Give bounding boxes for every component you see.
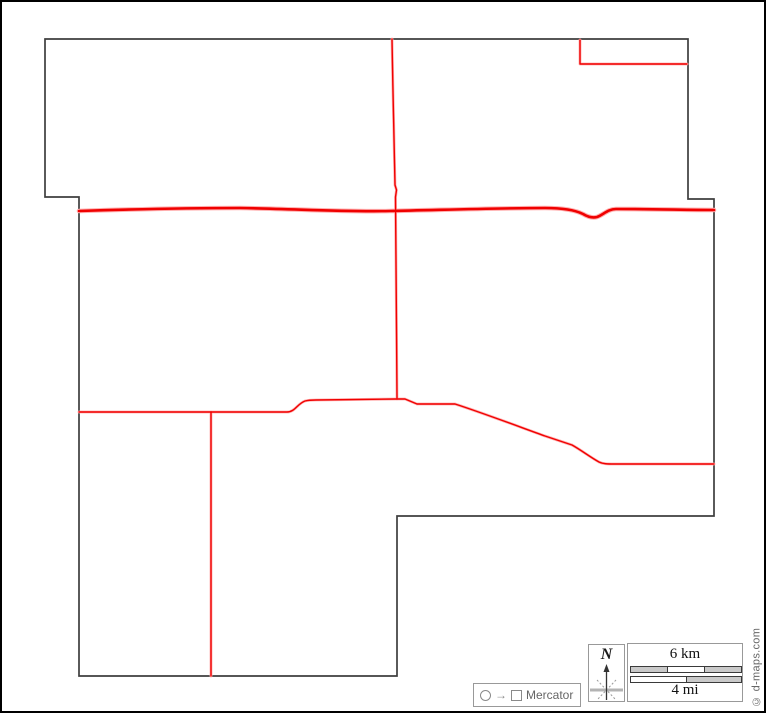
projection-badge: → Mercator <box>473 683 581 707</box>
county-outline <box>45 39 714 676</box>
globe-circle-icon <box>480 690 491 701</box>
scale-mi-label: 4 mi <box>628 682 742 699</box>
west-east-road-halo <box>79 399 397 412</box>
scale-km-segment <box>631 667 667 672</box>
scale-bar: 6 km 4 mi <box>627 643 743 702</box>
junction-southeast-road <box>397 399 714 464</box>
county-map <box>0 0 766 713</box>
map-canvas: N 6 km 4 mi → Mercator © d-maps.com <box>0 0 766 713</box>
flat-map-square-icon <box>511 690 522 701</box>
scale-km-segment <box>704 667 741 672</box>
northeast-boundary-halo <box>580 40 687 64</box>
projection-label: Mercator <box>526 688 573 702</box>
north-indicator: N <box>588 644 625 702</box>
scale-km-segment <box>667 667 704 672</box>
projection-arrow-icon: → <box>495 689 507 701</box>
compass-arrow-icon <box>589 663 624 701</box>
north-label: N <box>589 647 624 663</box>
scale-km-bar <box>630 666 742 673</box>
scale-km-label: 6 km <box>628 646 742 663</box>
northeast-boundary-road <box>580 40 687 64</box>
credit-text: © d-maps.com <box>749 626 764 708</box>
junction-southeast-road-halo <box>397 399 714 464</box>
